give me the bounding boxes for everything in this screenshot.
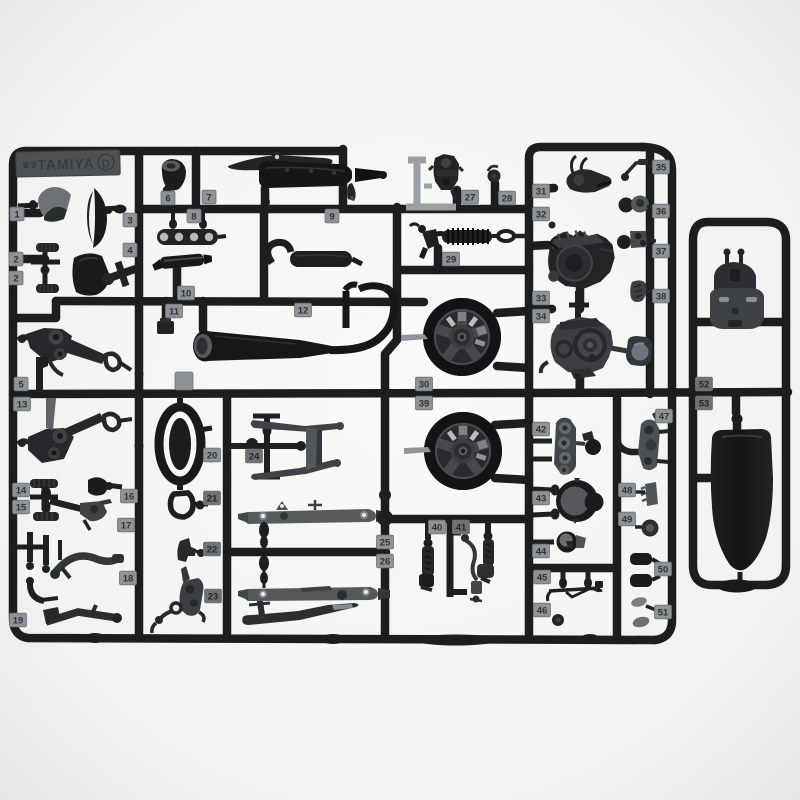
svg-text:14: 14 bbox=[16, 486, 27, 497]
svg-text:48: 48 bbox=[622, 486, 633, 497]
svg-text:11: 11 bbox=[169, 307, 180, 318]
svg-text:21: 21 bbox=[207, 494, 218, 505]
svg-text:52: 52 bbox=[699, 380, 710, 391]
svg-text:45: 45 bbox=[537, 573, 548, 584]
svg-text:29: 29 bbox=[446, 255, 457, 266]
svg-text:23: 23 bbox=[208, 592, 219, 603]
svg-text:49: 49 bbox=[622, 515, 633, 526]
svg-text:43: 43 bbox=[536, 494, 547, 505]
svg-text:7: 7 bbox=[206, 193, 211, 204]
svg-text:33: 33 bbox=[536, 294, 547, 305]
svg-text:32: 32 bbox=[536, 210, 547, 221]
svg-text:28: 28 bbox=[502, 194, 513, 205]
svg-text:17: 17 bbox=[121, 521, 132, 532]
svg-text:26: 26 bbox=[380, 557, 391, 568]
svg-text:31: 31 bbox=[536, 187, 547, 198]
svg-text:9: 9 bbox=[329, 212, 334, 223]
svg-text:22: 22 bbox=[207, 545, 218, 556]
svg-text:13: 13 bbox=[17, 400, 28, 411]
svg-text:5: 5 bbox=[18, 380, 24, 391]
svg-text:15: 15 bbox=[16, 503, 27, 514]
svg-text:24: 24 bbox=[249, 452, 260, 463]
svg-text:40: 40 bbox=[432, 523, 443, 534]
svg-text:TAMIYA: TAMIYA bbox=[37, 155, 95, 172]
svg-text:51: 51 bbox=[658, 608, 669, 619]
svg-text:1: 1 bbox=[14, 210, 20, 221]
svg-text:25: 25 bbox=[380, 538, 391, 549]
svg-text:47: 47 bbox=[659, 412, 670, 423]
svg-text:41: 41 bbox=[456, 523, 467, 534]
svg-text:8: 8 bbox=[191, 212, 196, 223]
svg-text:35: 35 bbox=[656, 163, 667, 174]
svg-text:♛♛: ♛♛ bbox=[22, 160, 38, 170]
svg-text:50: 50 bbox=[658, 565, 669, 576]
svg-text:44: 44 bbox=[536, 547, 547, 558]
svg-text:4: 4 bbox=[127, 246, 133, 257]
svg-text:19: 19 bbox=[13, 616, 24, 627]
svg-text:2: 2 bbox=[13, 255, 18, 266]
svg-text:53: 53 bbox=[699, 399, 710, 410]
svg-text:18: 18 bbox=[123, 574, 134, 585]
svg-text:27: 27 bbox=[465, 193, 476, 204]
svg-text:16: 16 bbox=[124, 492, 135, 503]
svg-text:10: 10 bbox=[181, 289, 192, 300]
svg-text:39: 39 bbox=[419, 399, 430, 410]
svg-text:36: 36 bbox=[656, 207, 667, 218]
svg-text:42: 42 bbox=[536, 425, 547, 436]
svg-text:38: 38 bbox=[656, 292, 667, 303]
svg-text:30: 30 bbox=[419, 380, 430, 391]
svg-text:12: 12 bbox=[298, 306, 309, 317]
svg-text:2: 2 bbox=[13, 274, 18, 285]
svg-text:3: 3 bbox=[127, 216, 132, 227]
svg-text:D: D bbox=[102, 158, 110, 170]
svg-text:6: 6 bbox=[165, 194, 170, 205]
svg-text:20: 20 bbox=[207, 451, 218, 462]
svg-text:37: 37 bbox=[656, 247, 667, 258]
svg-text:46: 46 bbox=[537, 606, 548, 617]
svg-text:34: 34 bbox=[536, 312, 547, 323]
